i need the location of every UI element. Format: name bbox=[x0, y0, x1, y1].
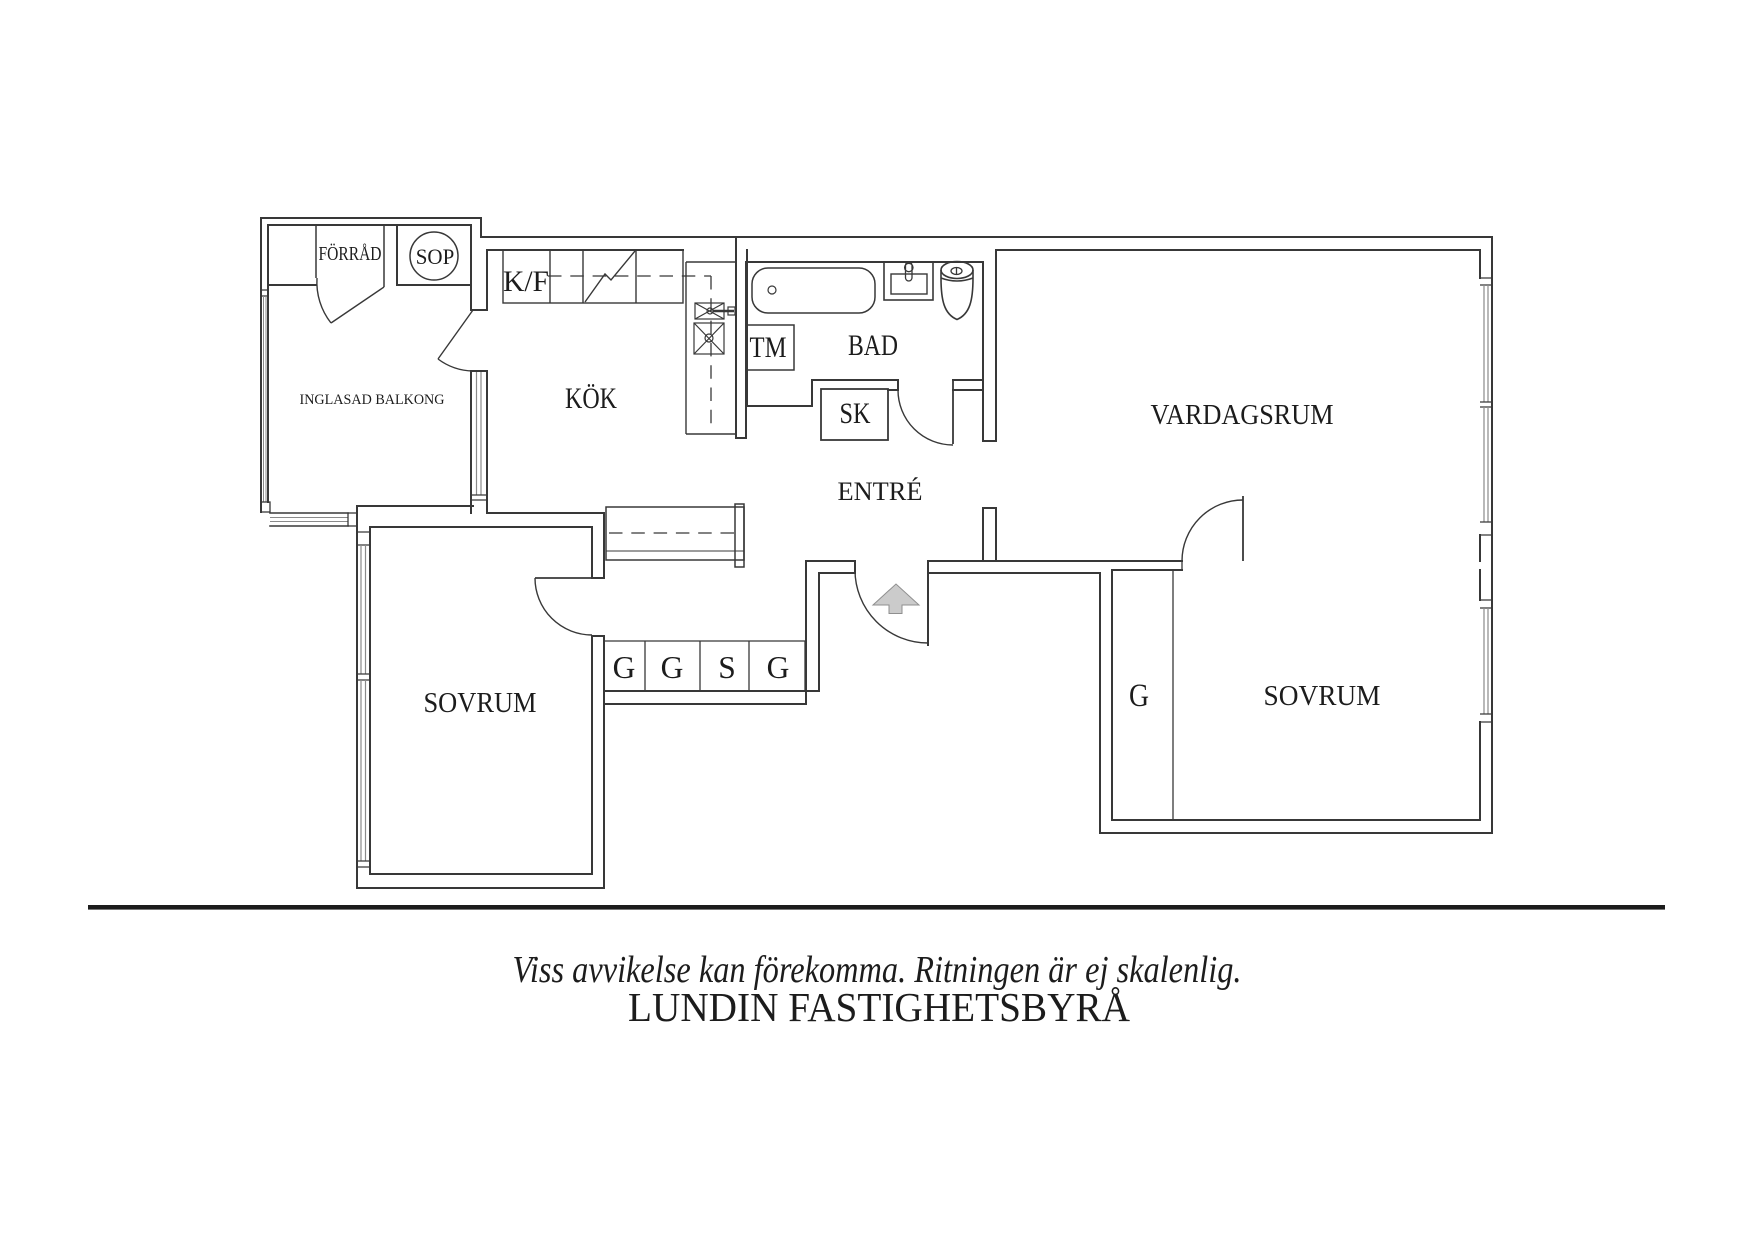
svg-text:SK: SK bbox=[840, 397, 871, 430]
svg-text:LUNDIN FASTIGHETSBYRÅ: LUNDIN FASTIGHETSBYRÅ bbox=[628, 984, 1130, 1030]
svg-text:K/F: K/F bbox=[503, 265, 549, 298]
svg-text:INGLASAD BALKONG: INGLASAD BALKONG bbox=[300, 392, 446, 408]
svg-text:S: S bbox=[718, 650, 736, 685]
svg-text:VARDAGSRUM: VARDAGSRUM bbox=[1151, 400, 1334, 431]
svg-text:TM: TM bbox=[750, 331, 787, 364]
svg-text:SOP: SOP bbox=[416, 244, 455, 269]
svg-text:SOVRUM: SOVRUM bbox=[424, 687, 537, 719]
svg-text:G: G bbox=[767, 650, 790, 685]
svg-text:G: G bbox=[661, 650, 684, 685]
svg-text:G: G bbox=[613, 650, 636, 685]
svg-text:G: G bbox=[1129, 678, 1149, 714]
svg-text:KÖK: KÖK bbox=[565, 382, 617, 415]
svg-text:ENTRÉ: ENTRÉ bbox=[838, 477, 923, 506]
svg-text:FÖRRÅD: FÖRRÅD bbox=[319, 244, 382, 265]
svg-text:SOVRUM: SOVRUM bbox=[1264, 680, 1381, 712]
svg-text:BAD: BAD bbox=[848, 329, 898, 362]
